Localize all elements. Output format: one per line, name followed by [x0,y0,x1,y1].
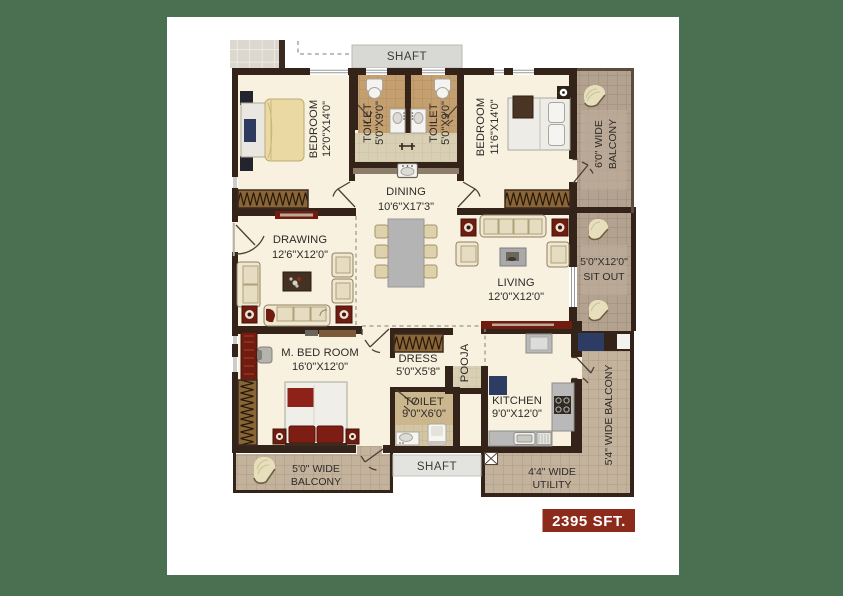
svg-text:TOILET: TOILET [362,103,374,143]
svg-text:12'0"X14'0": 12'0"X14'0" [321,101,333,157]
svg-text:5'0"X9'0": 5'0"X9'0" [440,101,452,145]
svg-text:BALCONY: BALCONY [607,119,619,169]
svg-text:4'4" WIDE: 4'4" WIDE [528,466,576,478]
svg-text:M. BED ROOM: M. BED ROOM [281,347,359,359]
svg-text:LIVING: LIVING [497,277,534,289]
svg-text:5'0"X12'0": 5'0"X12'0" [580,256,628,268]
svg-text:5'0" WIDE: 5'0" WIDE [292,463,340,475]
svg-text:SIT OUT: SIT OUT [583,271,625,283]
svg-text:BEDROOM: BEDROOM [308,100,320,159]
svg-text:TOILET: TOILET [428,103,440,143]
svg-text:2395 SFT.: 2395 SFT. [552,513,626,530]
svg-text:5'0"X9'0": 5'0"X9'0" [374,101,386,145]
svg-text:12'6"X12'0": 12'6"X12'0" [272,249,328,261]
svg-text:11'6"X14'0": 11'6"X14'0" [489,99,501,154]
svg-text:10'6"X17'3": 10'6"X17'3" [378,201,434,213]
svg-text:5'0"X5'8": 5'0"X5'8" [396,366,440,378]
svg-text:9'0"X12'0": 9'0"X12'0" [492,408,542,420]
svg-text:UTILITY: UTILITY [532,479,571,491]
svg-text:BALCONY: BALCONY [291,476,341,488]
svg-text:6'0" WIDE: 6'0" WIDE [593,120,605,168]
svg-text:16'0"X12'0": 16'0"X12'0" [292,361,348,373]
svg-text:12'0"X12'0": 12'0"X12'0" [488,291,544,303]
svg-text:SHAFT: SHAFT [387,51,427,63]
svg-text:BEDROOM: BEDROOM [475,98,487,157]
svg-text:KITCHEN: KITCHEN [492,395,542,407]
svg-text:DINING: DINING [386,186,426,198]
svg-text:5'4" WIDE BALCONY: 5'4" WIDE BALCONY [603,365,615,466]
svg-text:9'0"X6'0": 9'0"X6'0" [402,408,446,420]
svg-text:DRESS: DRESS [398,353,437,365]
svg-text:DRAWING: DRAWING [273,234,327,246]
svg-text:SHAFT: SHAFT [417,461,457,473]
svg-text:POOJA: POOJA [459,343,471,382]
svg-text:TOILET: TOILET [404,396,444,408]
